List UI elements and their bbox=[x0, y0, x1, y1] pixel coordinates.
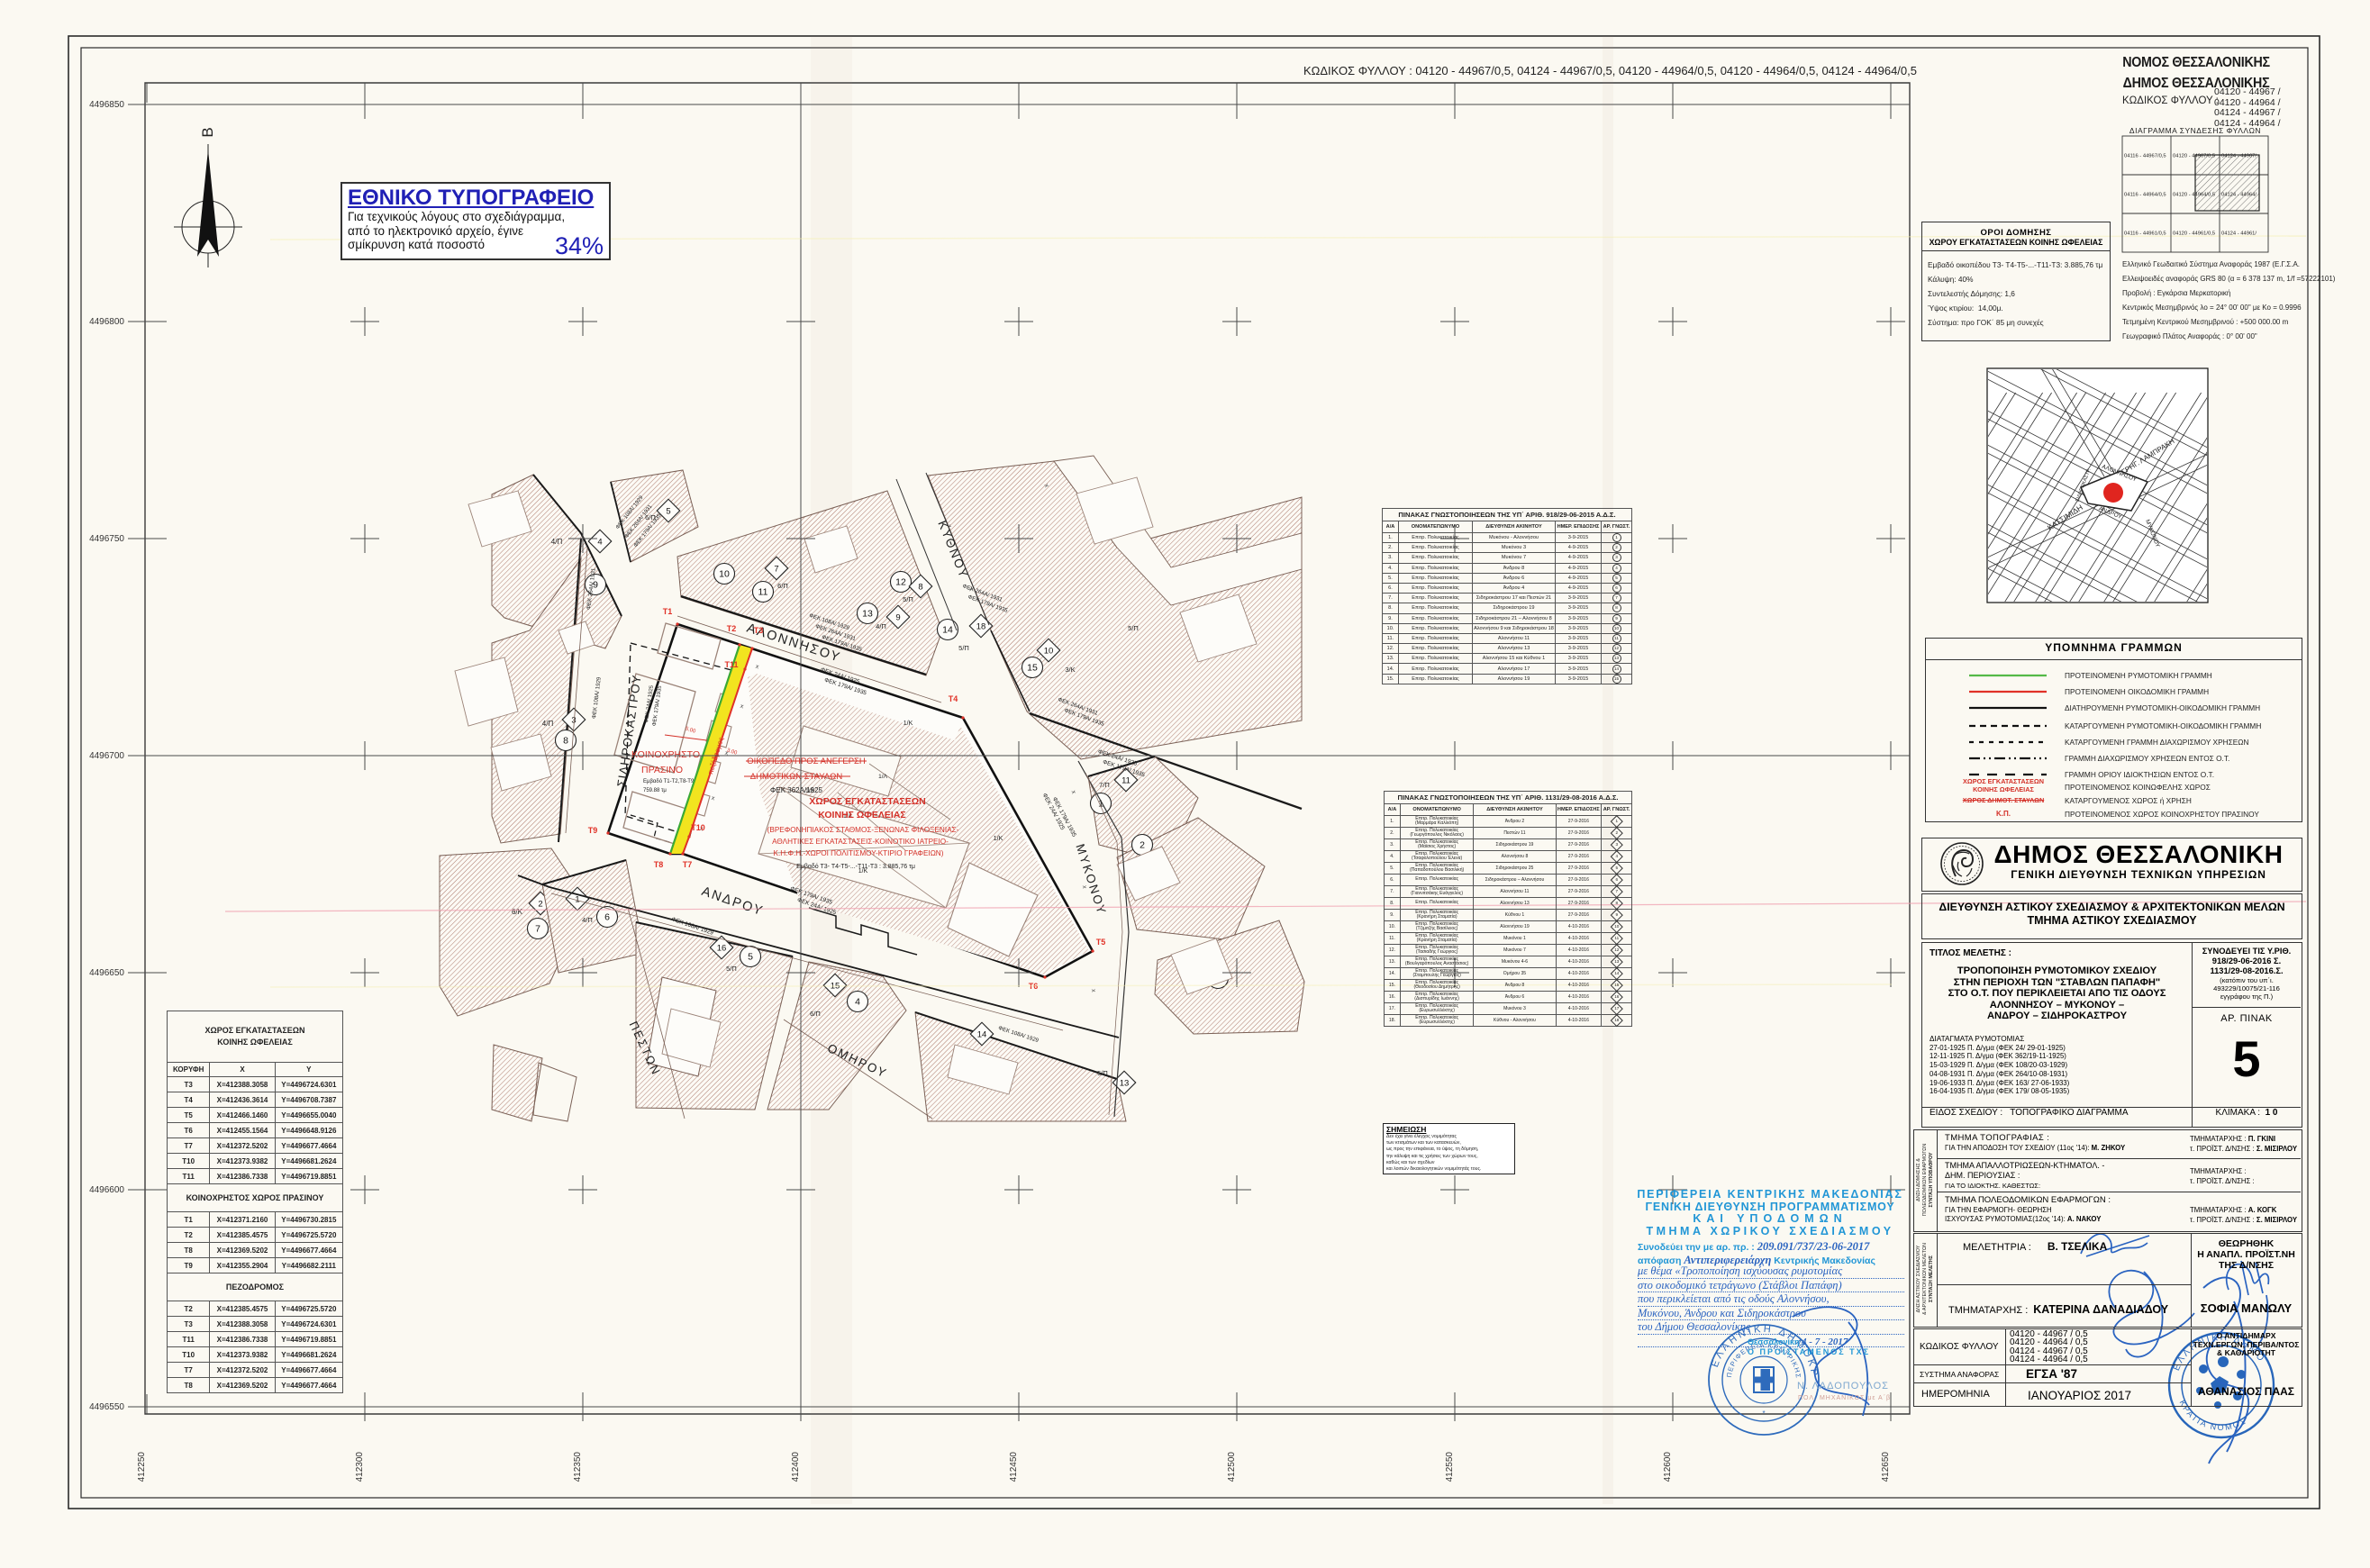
svg-text:Εμβαδό Τ3- Τ4-Τ5-...-Τ11-Τ3 :: Εμβαδό Τ3- Τ4-Τ5-...-Τ11-Τ3 : 3.885,76 τ… bbox=[796, 863, 915, 870]
svg-text:412300: 412300 bbox=[355, 1452, 365, 1482]
svg-text:1: 1 bbox=[575, 894, 579, 904]
svg-text:6/Π: 6/Π bbox=[810, 1010, 821, 1018]
svg-text:(ΒΡΕΦΟΝΗΠΙΑΚΟΣ ΣΤΑΘΜΟΣ-ΞΕΝΩΝΑΣ: (ΒΡΕΦΟΝΗΠΙΑΚΟΣ ΣΤΑΘΜΟΣ-ΞΕΝΩΝΑΣ ΦΙΛΟΞΕΝΙΑ… bbox=[767, 826, 959, 834]
svg-text:T5: T5 bbox=[1096, 938, 1106, 947]
svg-text:04124 - 44964/: 04124 - 44964/ bbox=[2221, 193, 2256, 198]
svg-text:T3: T3 bbox=[754, 626, 764, 635]
svg-text:412550: 412550 bbox=[1445, 1452, 1455, 1482]
svg-text:T2: T2 bbox=[727, 624, 737, 633]
svg-text:ΑΝΔΡΟΥ: ΑΝΔΡΟΥ bbox=[700, 884, 766, 920]
svg-text:4: 4 bbox=[855, 997, 860, 1008]
svg-text:4496550: 4496550 bbox=[89, 1402, 124, 1412]
svg-text:ΦΕΚ 108Α/ 1929: ΦΕΚ 108Α/ 1929 bbox=[591, 676, 603, 720]
svg-text:1/Κ: 1/Κ bbox=[994, 836, 1003, 842]
svg-text:5/Π: 5/Π bbox=[1097, 1069, 1108, 1077]
svg-text:ΚΟΙΝΟΧΡΗΣΤΟ: ΚΟΙΝΟΧΡΗΣΤΟ bbox=[631, 749, 700, 760]
svg-text:4496850: 4496850 bbox=[89, 100, 124, 110]
svg-text:T4: T4 bbox=[949, 694, 958, 703]
svg-text:13: 13 bbox=[862, 609, 873, 620]
svg-text:10: 10 bbox=[1044, 646, 1054, 656]
svg-text:4/Π: 4/Π bbox=[542, 720, 554, 728]
svg-text:Κ.Η.Φ.Η.-ΧΩΡΟΙ ΠΟΛΙΤΙΣΜΟΥ-ΚΤΙΡ: Κ.Η.Φ.Η.-ΧΩΡΟΙ ΠΟΛΙΤΙΣΜΟΥ-ΚΤΙΡΙΟ ΓΡΑΦΕΙΩ… bbox=[774, 849, 944, 857]
svg-text:5: 5 bbox=[748, 952, 753, 963]
svg-text:04120 - 44967/0,5: 04120 - 44967/0,5 bbox=[2173, 154, 2215, 159]
svg-text:5: 5 bbox=[666, 506, 670, 516]
svg-text:10: 10 bbox=[719, 569, 730, 580]
svg-text:T10: T10 bbox=[691, 823, 705, 832]
svg-text:04116 - 44964/0,5: 04116 - 44964/0,5 bbox=[2124, 193, 2166, 198]
svg-text:18: 18 bbox=[976, 621, 986, 631]
svg-text:412350: 412350 bbox=[573, 1452, 583, 1482]
svg-text:x: x bbox=[1070, 790, 1077, 795]
svg-text:412250: 412250 bbox=[137, 1452, 147, 1482]
svg-text:*: * bbox=[1762, 1409, 1765, 1418]
svg-text:11: 11 bbox=[1121, 775, 1131, 785]
svg-text:04120 - 44961/0,5: 04120 - 44961/0,5 bbox=[2173, 231, 2215, 237]
svg-text:ΠΟΛ. ΜΗΧΑΝΙΚΟΣ με Α΄β: ΠΟΛ. ΜΗΧΑΝΙΚΟΣ με Α΄β bbox=[1798, 1395, 1891, 1401]
svg-text:9: 9 bbox=[895, 612, 900, 622]
svg-text:T8: T8 bbox=[654, 860, 664, 869]
svg-text:3/Κ: 3/Κ bbox=[1065, 666, 1075, 674]
svg-text:6/Π: 6/Π bbox=[777, 582, 788, 590]
svg-text:4496600: 4496600 bbox=[89, 1185, 124, 1195]
svg-text:14: 14 bbox=[942, 625, 953, 636]
svg-text:4496750: 4496750 bbox=[89, 534, 124, 544]
svg-text:2: 2 bbox=[538, 899, 542, 909]
svg-text:4496650: 4496650 bbox=[89, 968, 124, 978]
svg-text:7/Π: 7/Π bbox=[1099, 781, 1110, 789]
svg-text:8: 8 bbox=[918, 582, 922, 592]
svg-text:412400: 412400 bbox=[791, 1452, 801, 1482]
svg-text:Ν. ΛΑΔΟΠΟΥΛΟΣ: Ν. ΛΑΔΟΠΟΥΛΟΣ bbox=[1797, 1381, 1889, 1391]
svg-text:T7: T7 bbox=[683, 860, 693, 869]
svg-text:ΧΩΡΟΣ ΕΓΚΑΤΑΣΤΑΣΕΩΝ: ΧΩΡΟΣ ΕΓΚΑΤΑΣΤΑΣΕΩΝ bbox=[809, 796, 925, 807]
svg-text:412600: 412600 bbox=[1663, 1452, 1673, 1482]
svg-text:ΚΟΙΝΗΣ ΩΦΕΛΕΙΑΣ: ΚΟΙΝΗΣ ΩΦΕΛΕΙΑΣ bbox=[818, 810, 905, 820]
svg-text:T1: T1 bbox=[663, 607, 673, 616]
svg-text:x: x bbox=[1090, 989, 1096, 993]
svg-text:11: 11 bbox=[758, 587, 768, 598]
svg-text:ΠΡΑΣΙΝΟ: ΠΡΑΣΙΝΟ bbox=[641, 765, 683, 775]
svg-text:759.88 τμ: 759.88 τμ bbox=[643, 788, 667, 793]
svg-text:4: 4 bbox=[597, 537, 602, 547]
svg-text:5/Π: 5/Π bbox=[726, 965, 737, 973]
svg-text:5/Π: 5/Π bbox=[1128, 624, 1139, 632]
svg-text:2: 2 bbox=[1140, 840, 1145, 851]
svg-text:B: B bbox=[199, 127, 216, 137]
svg-text:04116 - 44961/0,5: 04116 - 44961/0,5 bbox=[2124, 231, 2166, 237]
svg-text:16: 16 bbox=[717, 943, 727, 953]
svg-text:6/Κ: 6/Κ bbox=[512, 908, 523, 916]
svg-text:4/Π: 4/Π bbox=[582, 916, 593, 924]
svg-text:8: 8 bbox=[563, 736, 568, 747]
svg-text:ΦΕΚ 362Α/1925: ΦΕΚ 362Α/1925 bbox=[770, 786, 823, 794]
svg-text:412500: 412500 bbox=[1227, 1452, 1237, 1482]
svg-text:04124 - 44967/: 04124 - 44967/ bbox=[2221, 154, 2256, 159]
svg-text:T11: T11 bbox=[724, 660, 738, 669]
svg-text:4/Π: 4/Π bbox=[551, 538, 563, 546]
svg-text:5/Π: 5/Π bbox=[958, 644, 969, 652]
svg-text:412450: 412450 bbox=[1009, 1452, 1019, 1482]
svg-text:04116 - 44967/0,5: 04116 - 44967/0,5 bbox=[2124, 154, 2166, 159]
svg-text:7: 7 bbox=[535, 924, 540, 935]
svg-text:04120 - 44964/0,5: 04120 - 44964/0,5 bbox=[2173, 193, 2215, 198]
svg-text:5/Π: 5/Π bbox=[903, 595, 913, 603]
svg-text:1/Κ: 1/Κ bbox=[904, 721, 913, 727]
svg-text:ΜΥΚΟΝΟΥ: ΜΥΚΟΝΟΥ bbox=[1073, 842, 1109, 917]
svg-text:15: 15 bbox=[1027, 663, 1038, 674]
svg-text:14: 14 bbox=[977, 1029, 987, 1039]
svg-text:ΑΘΛΗΤΙΚΕΣ ΕΓΚΑΤΑΣΤΑΣΕΙΣ-ΚΟΙΝΟΤ: ΑΘΛΗΤΙΚΕΣ ΕΓΚΑΤΑΣΤΑΣΕΙΣ-ΚΟΙΝΟΤΙΚΟ ΙΑΤΡΕΙ… bbox=[772, 838, 949, 846]
svg-text:4496800: 4496800 bbox=[89, 317, 124, 327]
svg-text:12: 12 bbox=[895, 577, 906, 588]
svg-text:7: 7 bbox=[774, 564, 778, 574]
svg-text:4496700: 4496700 bbox=[89, 751, 124, 761]
svg-text:6: 6 bbox=[604, 912, 610, 923]
svg-text:412650: 412650 bbox=[1881, 1452, 1891, 1482]
svg-text:4/Π: 4/Π bbox=[876, 622, 886, 630]
svg-text:T9: T9 bbox=[588, 826, 598, 835]
svg-text:04124 - 44961/: 04124 - 44961/ bbox=[2221, 231, 2256, 237]
svg-text:1/Λ: 1/Λ bbox=[878, 774, 887, 780]
svg-text:13: 13 bbox=[1120, 1078, 1130, 1088]
